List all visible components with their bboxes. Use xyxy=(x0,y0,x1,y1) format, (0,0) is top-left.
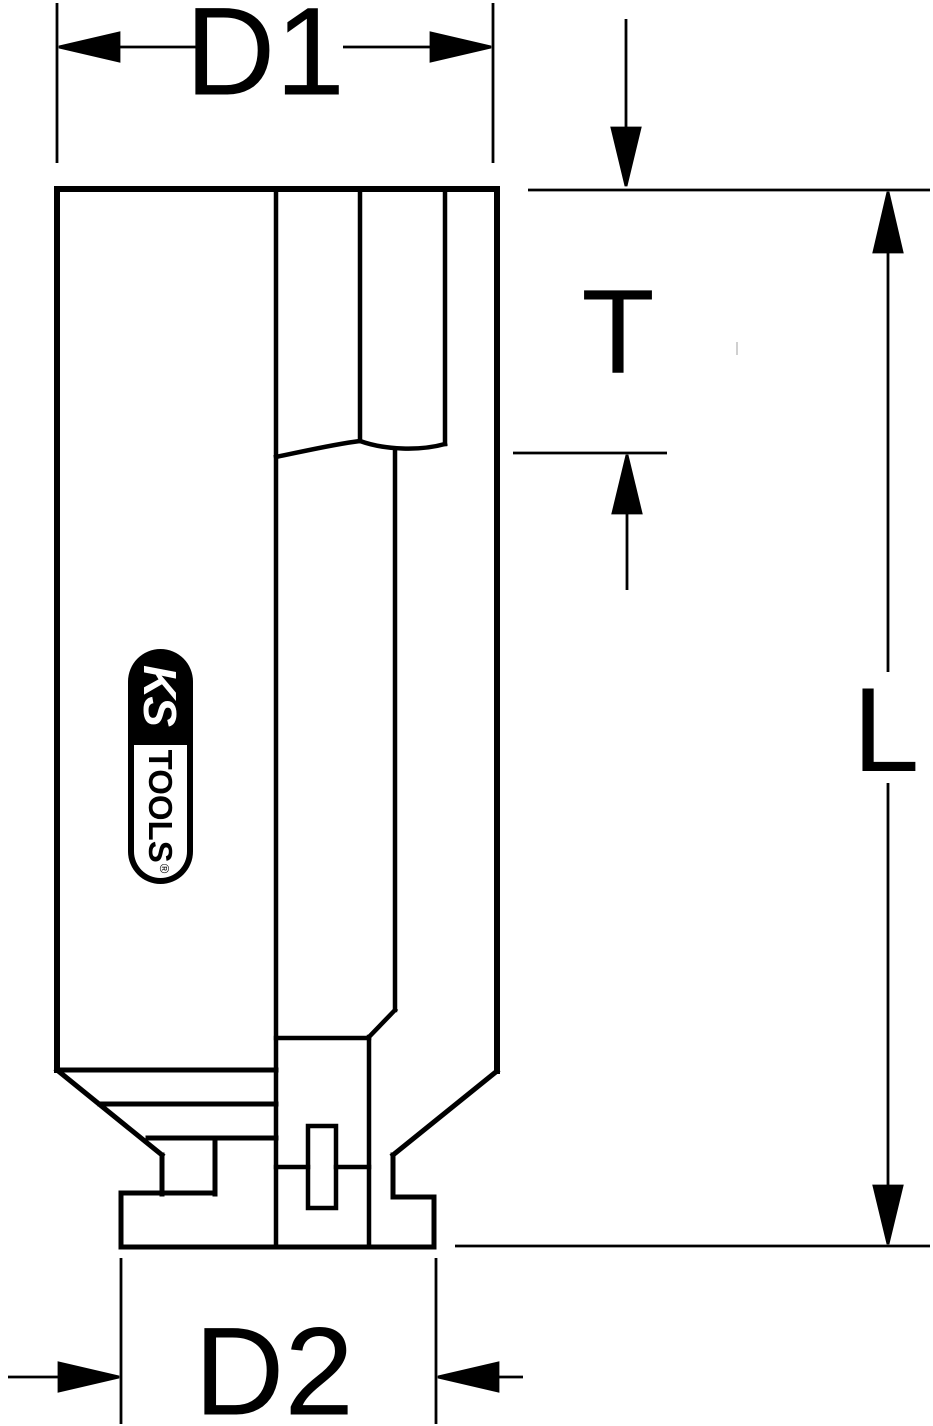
logo-brand-tools: TOOLS® xyxy=(134,745,187,878)
logo-brand-ks: KS xyxy=(128,649,193,745)
bore-section-lines xyxy=(276,189,445,1247)
arrowhead-down-icon xyxy=(874,1186,902,1244)
dimension-label-t: T xyxy=(581,272,654,392)
registered-mark: ® xyxy=(157,864,172,874)
arrowhead-left-icon xyxy=(59,33,119,61)
technical-drawing-canvas: D1 T L D2 KS TOOLS® xyxy=(0,0,933,1426)
arrowhead-up-icon xyxy=(613,455,641,513)
arrowhead-right-icon xyxy=(431,33,491,61)
dimension-label-l: L xyxy=(853,670,920,790)
t-dimension xyxy=(513,19,930,590)
arrowhead-left-icon xyxy=(438,1363,498,1391)
retaining-pin-hole xyxy=(308,1126,336,1208)
dimension-label-d1: D1 xyxy=(185,0,345,115)
ks-tools-logo: KS TOOLS® xyxy=(128,649,193,884)
dimension-label-d2: D2 xyxy=(194,1310,354,1426)
arrowhead-down-icon xyxy=(612,128,640,186)
arrowhead-right-icon xyxy=(59,1363,119,1391)
arrowhead-up-icon xyxy=(874,192,902,252)
logo-tools-text: TOOLS xyxy=(142,750,180,863)
